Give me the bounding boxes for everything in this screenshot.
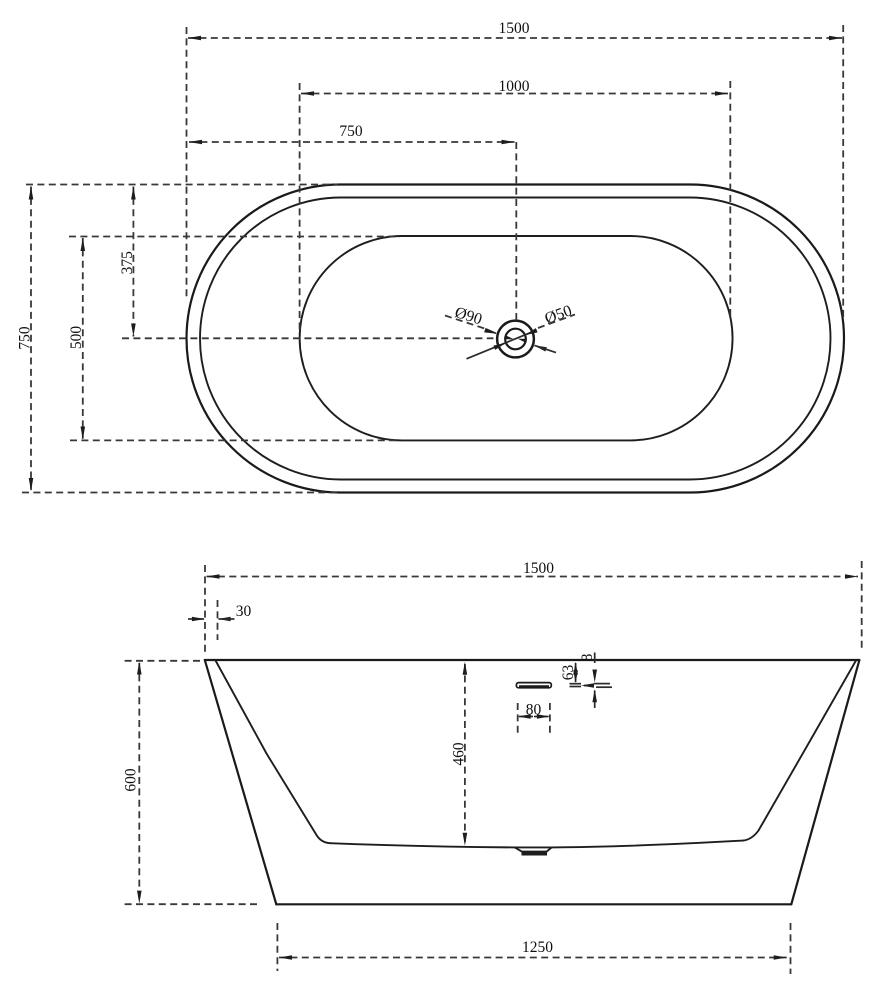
svg-text:1500: 1500 xyxy=(523,560,554,577)
svg-text:1250: 1250 xyxy=(522,939,553,956)
svg-text:1500: 1500 xyxy=(499,20,530,37)
svg-text:375: 375 xyxy=(119,251,136,275)
svg-text:80: 80 xyxy=(526,702,542,719)
svg-text:460: 460 xyxy=(451,742,468,766)
svg-text:500: 500 xyxy=(68,326,85,350)
svg-text:Ø90: Ø90 xyxy=(453,304,484,328)
svg-text:30: 30 xyxy=(236,603,252,620)
svg-text:63: 63 xyxy=(560,665,577,681)
svg-text:1000: 1000 xyxy=(499,78,530,95)
svg-text:750: 750 xyxy=(17,326,34,350)
svg-text:8: 8 xyxy=(579,653,596,661)
svg-text:750: 750 xyxy=(339,123,363,140)
svg-text:600: 600 xyxy=(122,768,139,792)
svg-text:Ø50: Ø50 xyxy=(543,302,575,327)
